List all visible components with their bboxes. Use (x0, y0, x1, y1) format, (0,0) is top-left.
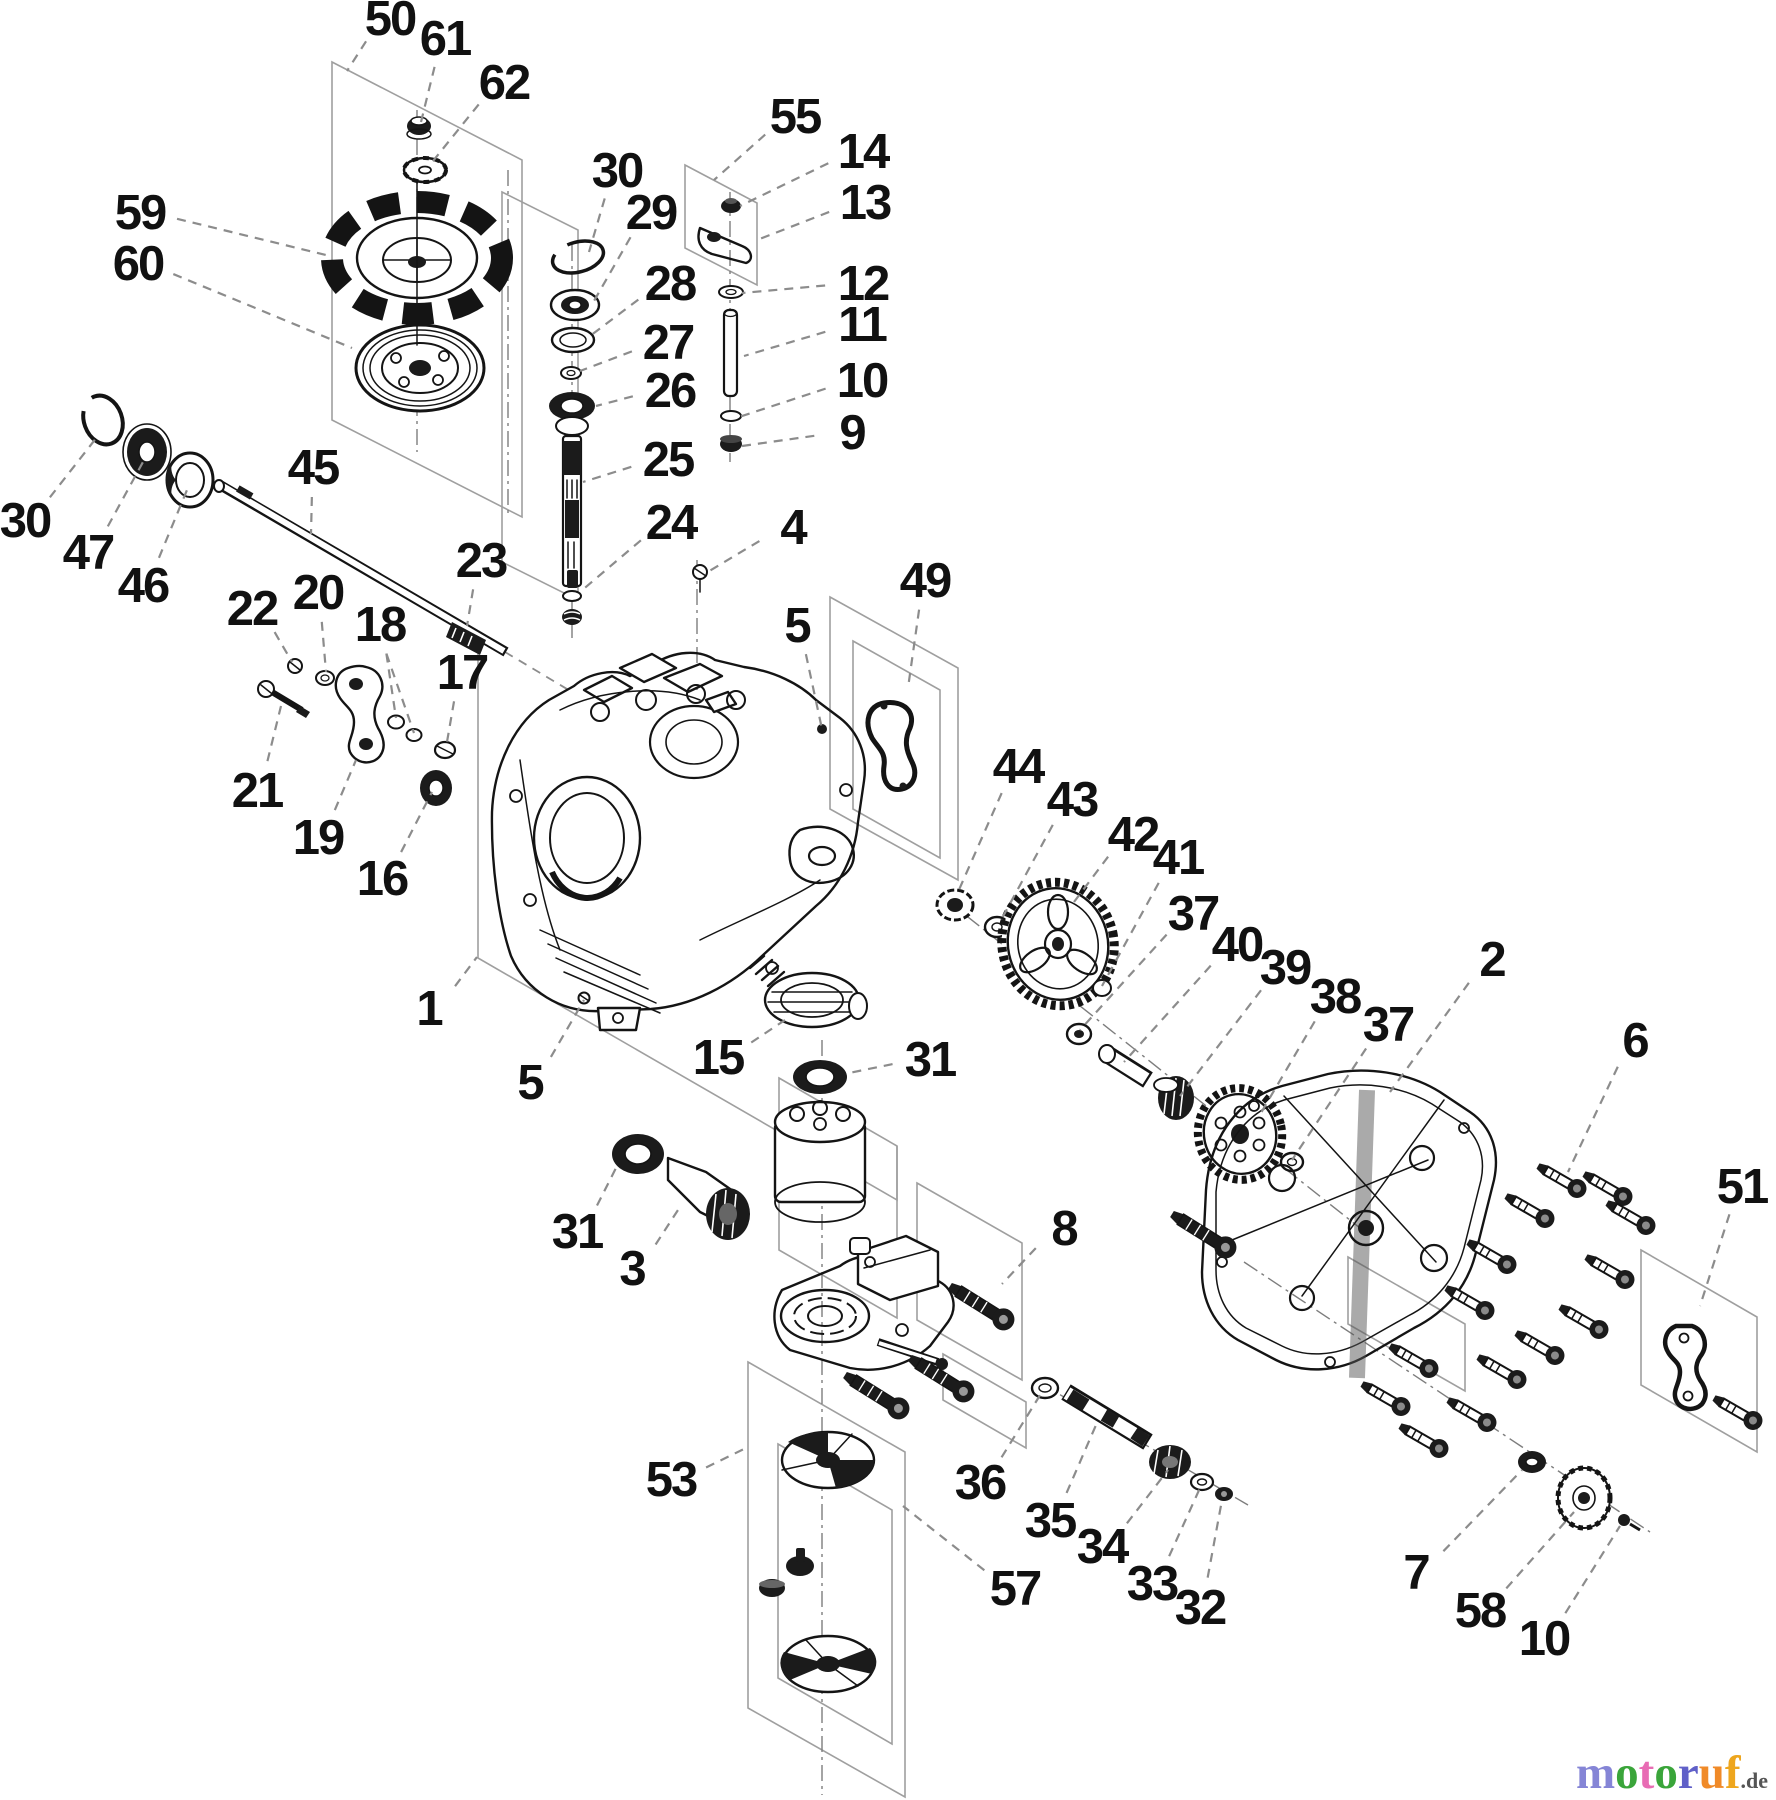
callout-34-56: 34 (1077, 1520, 1129, 1574)
callout-31-37: 31 (905, 1033, 956, 1087)
leader-line (751, 1020, 785, 1042)
callout-20-28: 20 (293, 566, 344, 620)
callout-16-33: 16 (357, 852, 408, 906)
callout-5-35: 5 (517, 1056, 543, 1110)
leader-line (322, 622, 326, 672)
leader-line (580, 351, 632, 371)
callout-5-22: 5 (784, 599, 810, 653)
axle-seals (77, 390, 213, 507)
callout-37-48: 37 (1363, 998, 1414, 1052)
leader-line (335, 760, 356, 810)
callout-57-59: 57 (990, 1562, 1041, 1616)
leader-line (744, 332, 825, 356)
leader-line (1002, 1392, 1042, 1457)
leader-line (958, 793, 1002, 892)
callout-44-40: 44 (993, 740, 1045, 794)
callout-layer: 5061625960302928272625242355141312111094… (0, 0, 1768, 1666)
callout-27-8: 27 (643, 316, 694, 370)
leader-line (656, 1210, 678, 1244)
leader-line (908, 610, 919, 688)
callout-46-25: 46 (118, 559, 169, 613)
callout-17-30: 17 (437, 646, 488, 700)
leader-line (757, 212, 829, 240)
callout-28-7: 28 (645, 257, 696, 311)
callout-10-62: 10 (1519, 1612, 1570, 1666)
leader-line (455, 957, 477, 986)
leader-line (551, 1000, 584, 1057)
leader-line (706, 1447, 748, 1467)
callout-31-38: 31 (552, 1205, 603, 1259)
callout-26-9: 26 (645, 364, 696, 418)
callout-35-55: 35 (1025, 1494, 1076, 1548)
trunnion-assembly (612, 956, 867, 1240)
callout-36-54: 36 (955, 1456, 1006, 1510)
filter-parts (759, 1432, 876, 1692)
charge-pump-assembly (774, 1236, 953, 1370)
leader-line (447, 701, 454, 742)
leader-line (1565, 1526, 1620, 1613)
callout-60-4: 60 (113, 237, 164, 291)
callout-43-41: 43 (1047, 773, 1098, 827)
leader-line (467, 589, 473, 626)
callout-39-46: 39 (1260, 941, 1311, 995)
callout-19-32: 19 (293, 811, 344, 865)
callout-32-58: 32 (1175, 1581, 1226, 1635)
leader-line (903, 1506, 984, 1570)
leader-line (1568, 1067, 1618, 1172)
leader-line (1067, 1425, 1096, 1493)
callout-62-2: 62 (479, 56, 530, 110)
callout-14-14: 14 (838, 125, 890, 179)
diagram-page: 5061625960302928272625242355141312111094… (0, 0, 1776, 1800)
callout-6-50: 6 (1622, 1014, 1648, 1068)
callout-24-11: 24 (646, 496, 698, 550)
callout-25-10: 25 (643, 433, 694, 487)
leader-line (849, 1064, 893, 1073)
leader-line (177, 219, 330, 256)
leader-line (580, 540, 641, 592)
leader-line (596, 396, 633, 406)
leader-line (706, 541, 759, 573)
leader-line (742, 285, 825, 293)
callout-42-42: 42 (1108, 808, 1159, 862)
callout-50-0: 50 (365, 0, 416, 46)
diagram: 5061625960302928272625242355141312111094… (0, 0, 1776, 1800)
callout-8-52: 8 (1051, 1202, 1077, 1256)
callout-21-31: 21 (232, 764, 283, 818)
leader-line (1506, 1512, 1574, 1588)
callout-55-13: 55 (770, 90, 821, 144)
callout-18-29: 18 (355, 598, 406, 652)
leader-line (50, 437, 97, 497)
callout-38-47: 38 (1310, 970, 1361, 1024)
callout-23-12: 23 (456, 534, 507, 588)
callout-40-45: 40 (1212, 918, 1263, 972)
callout-7-60: 7 (1403, 1546, 1429, 1600)
leader-line (714, 135, 765, 180)
leader-line (173, 274, 352, 348)
leader-line (267, 706, 281, 761)
control-hardware (258, 659, 455, 806)
leader-line (1169, 1488, 1200, 1556)
callout-1-34: 1 (416, 982, 442, 1036)
leader-line (275, 632, 292, 662)
callout-30-23: 30 (0, 494, 51, 548)
leader-line (583, 467, 631, 482)
leader-line (806, 654, 822, 729)
fan-washer-part (404, 158, 446, 182)
callout-9-19: 9 (839, 406, 865, 460)
callout-58-61: 58 (1455, 1584, 1506, 1638)
leader-line (742, 436, 814, 446)
fan-nut-part (407, 117, 431, 139)
callout-13-15: 13 (840, 176, 891, 230)
leader-line (1180, 990, 1261, 1096)
callout-2-49: 2 (1479, 933, 1505, 987)
leader-line (1124, 966, 1211, 1062)
output-end-parts (1518, 1451, 1640, 1530)
callout-53-53: 53 (646, 1453, 697, 1507)
watermark-logo: motoruf.de (1576, 1747, 1768, 1799)
kidney-gasket (868, 703, 915, 790)
leader-line (739, 389, 826, 417)
brake-rod-column (699, 198, 751, 452)
callout-10-18: 10 (837, 354, 888, 408)
callout-4-20: 4 (780, 501, 807, 555)
callout-3-39: 3 (619, 1242, 645, 1296)
callout-59-3: 59 (115, 186, 166, 240)
leader-line (1292, 1049, 1366, 1160)
leader-line (386, 654, 396, 718)
callout-29-6: 29 (626, 186, 677, 240)
callout-61-1: 61 (420, 12, 471, 66)
leader-line (1002, 1248, 1036, 1284)
leader-line (1127, 1470, 1168, 1523)
leader-line (740, 163, 828, 206)
callout-22-27: 22 (227, 582, 278, 636)
callout-33-57: 33 (1127, 1557, 1178, 1611)
leader-line (347, 41, 366, 71)
leader-line (1443, 1470, 1522, 1551)
callout-51-51: 51 (1717, 1160, 1768, 1214)
leader-line (1208, 1500, 1222, 1578)
leader-line (311, 497, 312, 534)
callout-49-21: 49 (900, 554, 951, 608)
callout-11-17: 11 (838, 298, 887, 352)
leader-line (429, 104, 479, 166)
leader-line (597, 1168, 616, 1205)
brake-bracket (1665, 1326, 1705, 1409)
callout-41-43: 41 (1153, 831, 1204, 885)
callout-47-24: 47 (63, 526, 114, 580)
callout-45-26: 45 (288, 441, 339, 495)
callout-15-36: 15 (693, 1031, 744, 1085)
